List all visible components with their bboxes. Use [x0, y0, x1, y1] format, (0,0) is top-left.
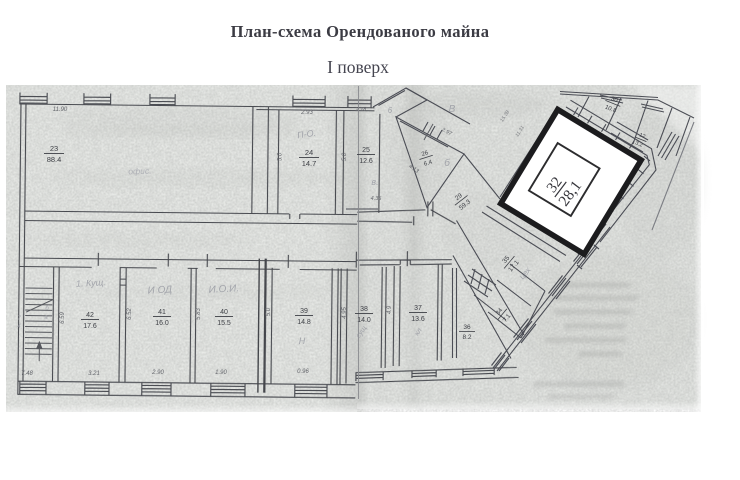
- svg-text:7.48: 7.48: [21, 371, 33, 377]
- svg-text:4.9: 4.9: [387, 305, 393, 314]
- svg-text:5.0: 5.0: [278, 152, 284, 161]
- svg-text:Н: Н: [299, 336, 306, 346]
- svg-text:88.4: 88.4: [47, 155, 62, 164]
- svg-text:6.52: 6.52: [127, 308, 133, 320]
- svg-text:17.6: 17.6: [83, 323, 97, 330]
- svg-text:0.96: 0.96: [297, 369, 309, 375]
- svg-text:2.90: 2.90: [151, 370, 164, 376]
- svg-text:36: 36: [463, 324, 471, 331]
- svg-text:25: 25: [362, 147, 370, 154]
- svg-text:40: 40: [220, 309, 228, 316]
- svg-text:6: 6: [388, 106, 393, 115]
- svg-text:14.7: 14.7: [302, 159, 317, 168]
- svg-text:14.0: 14.0: [357, 317, 371, 324]
- svg-text:42: 42: [86, 312, 94, 319]
- svg-text:14.8: 14.8: [297, 319, 311, 326]
- svg-text:І поверх: І поверх: [327, 57, 389, 77]
- svg-text:38: 38: [360, 306, 368, 313]
- svg-text:39: 39: [300, 308, 308, 315]
- svg-text:11.90: 11.90: [53, 107, 68, 113]
- svg-text:5.0: 5.0: [342, 152, 348, 161]
- svg-text:12.6: 12.6: [359, 158, 373, 165]
- svg-text:В: В: [449, 104, 456, 115]
- svg-text:37: 37: [414, 305, 422, 312]
- svg-text:2.18: 2.18: [355, 107, 368, 113]
- svg-text:План-схема Орендованого майна: План-схема Орендованого майна: [231, 22, 490, 41]
- svg-text:24: 24: [305, 148, 313, 157]
- svg-text:5.0: 5.0: [266, 307, 272, 316]
- svg-text:И.О.И.: И.О.И.: [208, 283, 239, 296]
- svg-text:15.5: 15.5: [217, 320, 231, 327]
- svg-text:1. Кущ.: 1. Кущ.: [76, 277, 106, 289]
- svg-text:4.95: 4.95: [342, 307, 348, 319]
- svg-text:офис.: офис.: [128, 166, 152, 177]
- svg-text:8.2: 8.2: [462, 334, 471, 341]
- svg-text:5.83: 5.83: [196, 308, 202, 320]
- svg-text:6.59: 6.59: [60, 312, 66, 324]
- svg-text:23: 23: [50, 144, 58, 153]
- svg-text:4.35: 4.35: [371, 196, 383, 202]
- svg-text:б: б: [444, 157, 450, 169]
- svg-text:13.6: 13.6: [411, 316, 425, 323]
- svg-text:И ОД: И ОД: [147, 284, 172, 296]
- svg-text:16.0: 16.0: [155, 320, 169, 327]
- svg-text:3.21: 3.21: [88, 371, 100, 377]
- svg-text:в.: в.: [371, 177, 378, 187]
- svg-text:41: 41: [158, 309, 166, 316]
- svg-text:2.93: 2.93: [300, 110, 313, 116]
- svg-text:1.90: 1.90: [215, 370, 227, 376]
